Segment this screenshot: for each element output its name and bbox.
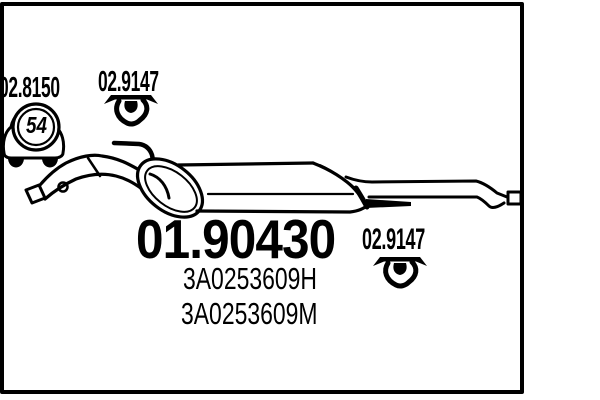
main-part-code: 01.90430 (136, 212, 335, 267)
muffler-body (178, 163, 369, 212)
accessory-code-car-kit: 02.8150 (0, 74, 60, 103)
oem-number-2: 3A0253609M (181, 298, 317, 329)
catalog-page: 02.8150 02.9147 01.90430 02.9147 3A02536… (0, 0, 600, 400)
tail-pipe-tip (508, 192, 521, 204)
accessory-code-clamp-top: 02.9147 (98, 68, 159, 97)
inlet-flange (26, 185, 45, 203)
clamp-icon-top (104, 95, 158, 124)
muffler-outlet-cone (313, 163, 411, 208)
exhaust-diagram (0, 0, 600, 400)
accessory-code-clamp-bottom: 02.9147 (362, 225, 425, 255)
car-badge-number: 54 (24, 114, 49, 137)
oem-number-1: 3A0253609H (183, 263, 317, 294)
clamp-icon-bottom (373, 257, 427, 286)
